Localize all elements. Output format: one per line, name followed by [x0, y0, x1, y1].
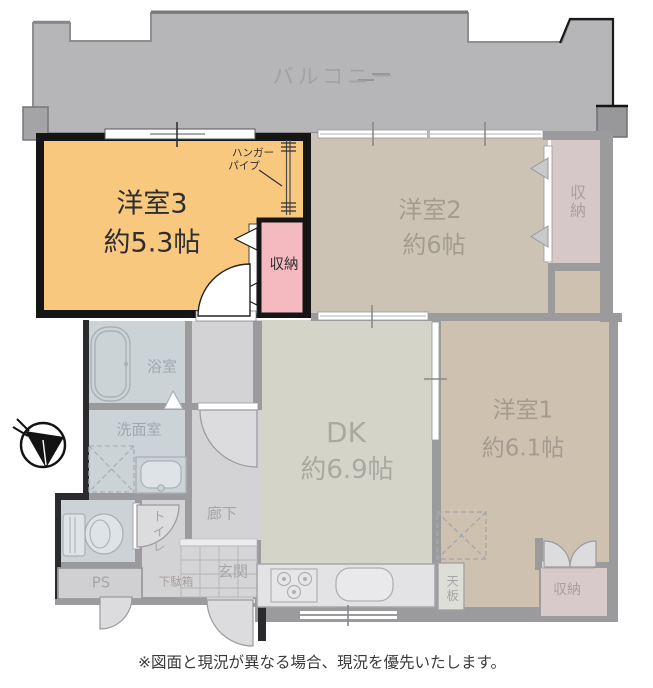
- sliding-door: [432, 322, 439, 440]
- ps-box: [58, 568, 142, 599]
- entrance-tiles: [180, 539, 257, 597]
- ps-door: [100, 597, 132, 629]
- floorplan-canvas: [0, 0, 653, 688]
- balcony-shape: [23, 12, 628, 140]
- counter-top-box: [438, 563, 464, 610]
- floorplan-page: バルコニー 洋室3 約5.3帖 ハンガー パイプ 収納 洋室2 約6帖 収納 洋…: [0, 0, 653, 688]
- toilet-fixture: [63, 514, 123, 556]
- wash-basin: [136, 457, 186, 493]
- compass-icon: [13, 419, 65, 468]
- entrance-door: [207, 600, 253, 646]
- kitchen-sink: [336, 568, 393, 601]
- highlight-room3: [40, 122, 307, 321]
